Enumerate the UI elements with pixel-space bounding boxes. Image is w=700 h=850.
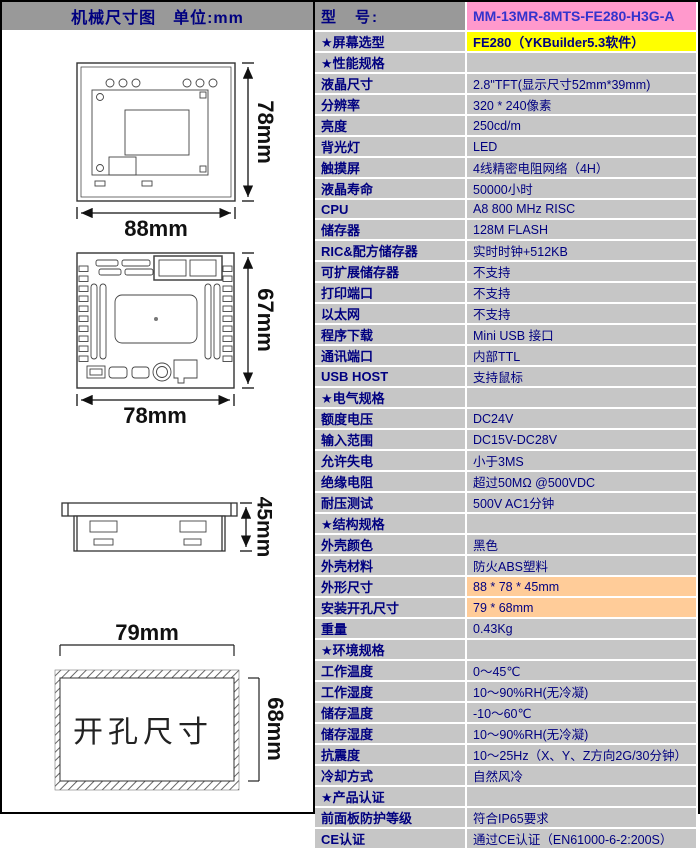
- spec-label: 重量: [315, 619, 467, 640]
- spec-row: 重量0.43Kg: [315, 619, 698, 640]
- spec-row: 程序下载Mini USB 接口: [315, 325, 698, 346]
- spec-table: 型 号:MM-13MR-8MTS-FE280-H3G-A★屏幕选型FE280（Y…: [315, 2, 698, 850]
- spec-label: CE认证: [315, 829, 467, 850]
- section-header-label: ★电气规格: [315, 388, 467, 409]
- spec-label: 程序下载: [315, 325, 467, 346]
- spec-row: ★屏幕选型FE280（YKBuilder5.3软件）: [315, 32, 698, 53]
- back-view-drawing: 67mm 78mm: [2, 238, 313, 428]
- spec-row: 液晶尺寸2.8"TFT(显示尺寸52mm*39mm): [315, 74, 698, 95]
- spec-value: [467, 640, 698, 661]
- spec-value: 小于3MS: [467, 451, 698, 472]
- spec-label: 外壳材料: [315, 556, 467, 577]
- mechanical-drawing-panel: 机械尺寸图 单位:mm: [2, 2, 315, 812]
- spec-value: 10～90%RH(无冷凝): [467, 682, 698, 703]
- spec-row: 工作温度0～45℃: [315, 661, 698, 682]
- spec-row: 抗震度10～25Hz（X、Y、Z方向2G/30分钟）: [315, 745, 698, 766]
- spec-value: Mini USB 接口: [467, 325, 698, 346]
- spec-value: 超过50MΩ @500VDC: [467, 472, 698, 493]
- back-height-dimension: [242, 253, 254, 388]
- drawing-area: 78mm 88mm: [2, 30, 313, 812]
- spec-label: 可扩展储存器: [315, 262, 467, 283]
- cutout-width-label: 79mm: [115, 620, 179, 645]
- spec-value: -10～60℃: [467, 703, 698, 724]
- spec-value: 0～45℃: [467, 661, 698, 682]
- spec-label: 以太网: [315, 304, 467, 325]
- spec-label: 外形尺寸: [315, 577, 467, 598]
- spec-label: 安装开孔尺寸: [315, 598, 467, 619]
- spec-label: 触摸屏: [315, 158, 467, 179]
- spec-value: [467, 53, 698, 74]
- spec-value: A8 800 MHz RISC: [467, 200, 698, 220]
- spec-value: 符合IP65要求: [467, 808, 698, 829]
- spec-row: 额度电压DC24V: [315, 409, 698, 430]
- spec-row: 亮度250cd/m: [315, 116, 698, 137]
- spec-row: 绝缘电阻超过50MΩ @500VDC: [315, 472, 698, 493]
- spec-row: 触摸屏4线精密电阻网络（4H）: [315, 158, 698, 179]
- spec-row: RIC&配方储存器实时时钟+512KB: [315, 241, 698, 262]
- spec-value: 不支持: [467, 262, 698, 283]
- spec-row: 冷却方式自然风冷: [315, 766, 698, 787]
- spec-value: DC15V-DC28V: [467, 430, 698, 451]
- spec-value: 2.8"TFT(显示尺寸52mm*39mm): [467, 74, 698, 95]
- side-view-drawing: 45mm: [2, 428, 313, 618]
- spec-label: 分辨率: [315, 95, 467, 116]
- spec-label: 外壳颜色: [315, 535, 467, 556]
- spec-section-row: ★产品认证: [315, 787, 698, 808]
- spec-row: 外形尺寸88 * 78 * 45mm: [315, 577, 698, 598]
- front-width-label: 88mm: [124, 216, 188, 238]
- spec-value: 不支持: [467, 304, 698, 325]
- spec-value: 10～90%RH(无冷凝): [467, 724, 698, 745]
- section-header-label: ★产品认证: [315, 787, 467, 808]
- spec-row: 打印端口不支持: [315, 283, 698, 304]
- spec-value: 内部TTL: [467, 346, 698, 367]
- spec-value: MM-13MR-8MTS-FE280-H3G-A: [467, 2, 698, 32]
- cutout-width-dimension: [60, 645, 234, 656]
- side-view-outline: [62, 503, 237, 551]
- spec-row: 可扩展储存器不支持: [315, 262, 698, 283]
- spec-label: 工作湿度: [315, 682, 467, 703]
- spec-label: 工作温度: [315, 661, 467, 682]
- spec-row: 外壳材料防火ABS塑料: [315, 556, 698, 577]
- spec-row: 储存器128M FLASH: [315, 220, 698, 241]
- spec-value: [467, 388, 698, 409]
- cutout-label: 开孔尺寸: [73, 716, 213, 749]
- cutout-height-label: 68mm: [263, 697, 288, 761]
- spec-label: 型 号:: [315, 2, 467, 32]
- spec-label: 额度电压: [315, 409, 467, 430]
- spec-label: 通讯端口: [315, 346, 467, 367]
- spec-table-rows: 型 号:MM-13MR-8MTS-FE280-H3G-A★屏幕选型FE280（Y…: [315, 2, 698, 850]
- spec-label: 液晶寿命: [315, 179, 467, 200]
- spec-label: 储存湿度: [315, 724, 467, 745]
- spec-value: 自然风冷: [467, 766, 698, 787]
- spec-label: 储存器: [315, 220, 467, 241]
- spec-label: 抗震度: [315, 745, 467, 766]
- front-bezel-outline: [77, 63, 235, 201]
- drawing-panel-title: 机械尺寸图 单位:mm: [71, 4, 244, 28]
- spec-label: 冷却方式: [315, 766, 467, 787]
- spec-value: 250cd/m: [467, 116, 698, 137]
- spec-value: 4线精密电阻网络（4H）: [467, 158, 698, 179]
- spec-value: 500V AC1分钟: [467, 493, 698, 514]
- spec-row: 储存温度-10～60℃: [315, 703, 698, 724]
- spec-label: ★屏幕选型: [315, 32, 467, 53]
- spec-label: 允许失电: [315, 451, 467, 472]
- front-height-dimension: [242, 63, 254, 201]
- spec-row: USB HOST支持鼠标: [315, 367, 698, 388]
- spec-value: FE280（YKBuilder5.3软件）: [467, 32, 698, 53]
- spec-label: 前面板防护等级: [315, 808, 467, 829]
- spec-label: 背光灯: [315, 137, 467, 158]
- spec-row: 安装开孔尺寸79 * 68mm: [315, 598, 698, 619]
- spec-value: LED: [467, 137, 698, 158]
- front-view-drawing: 78mm 88mm: [2, 30, 313, 238]
- model-row: 型 号:MM-13MR-8MTS-FE280-H3G-A: [315, 2, 698, 32]
- section-header-label: ★环境规格: [315, 640, 467, 661]
- spec-row: 通讯端口内部TTL: [315, 346, 698, 367]
- spec-row: 输入范围DC15V-DC28V: [315, 430, 698, 451]
- side-depth-dimension: [240, 503, 252, 551]
- spec-label: RIC&配方储存器: [315, 241, 467, 262]
- spec-row: CE认证通过CE认证（EN61000-6-2:200S）: [315, 829, 698, 850]
- spec-row: 分辨率320 * 240像素: [315, 95, 698, 116]
- spec-label: 储存温度: [315, 703, 467, 724]
- spec-value: [467, 787, 698, 808]
- spec-row: 背光灯LED: [315, 137, 698, 158]
- cutout-height-dimension: [248, 678, 259, 781]
- section-header-label: ★结构规格: [315, 514, 467, 535]
- drawing-panel-header: 机械尺寸图 单位:mm: [2, 2, 313, 30]
- spec-value: 支持鼠标: [467, 367, 698, 388]
- spec-row: 液晶寿命50000小时: [315, 179, 698, 200]
- spec-label: 绝缘电阻: [315, 472, 467, 493]
- spec-row: 工作湿度10～90%RH(无冷凝): [315, 682, 698, 703]
- spec-row: 允许失电小于3MS: [315, 451, 698, 472]
- spec-label: CPU: [315, 200, 467, 220]
- spec-value: 通过CE认证（EN61000-6-2:200S）: [467, 829, 698, 850]
- spec-label: 液晶尺寸: [315, 74, 467, 95]
- front-height-label: 78mm: [253, 100, 278, 164]
- cutout-drawing: 79mm 开孔尺寸 68mm: [2, 618, 313, 810]
- side-depth-label: 45mm: [252, 497, 275, 558]
- spec-row: CPUA8 800 MHz RISC: [315, 200, 698, 220]
- section-header-label: ★性能规格: [315, 53, 467, 74]
- spec-panel: 型 号:MM-13MR-8MTS-FE280-H3G-A★屏幕选型FE280（Y…: [315, 2, 698, 812]
- spec-value: [467, 514, 698, 535]
- spec-value: DC24V: [467, 409, 698, 430]
- spec-value: 防火ABS塑料: [467, 556, 698, 577]
- back-height-label: 67mm: [253, 288, 278, 352]
- spec-row: 耐压测试500V AC1分钟: [315, 493, 698, 514]
- spec-row: 储存湿度10～90%RH(无冷凝): [315, 724, 698, 745]
- spec-row: 以太网不支持: [315, 304, 698, 325]
- spec-label: 输入范围: [315, 430, 467, 451]
- spec-section-row: ★结构规格: [315, 514, 698, 535]
- spec-value: 10～25Hz（X、Y、Z方向2G/30分钟）: [467, 745, 698, 766]
- spec-value: 88 * 78 * 45mm: [467, 577, 698, 598]
- spec-value: 0.43Kg: [467, 619, 698, 640]
- spec-row: 外壳颜色黑色: [315, 535, 698, 556]
- spec-section-row: ★性能规格: [315, 53, 698, 74]
- spec-value: 128M FLASH: [467, 220, 698, 241]
- spec-label: 打印端口: [315, 283, 467, 304]
- spec-value: 320 * 240像素: [467, 95, 698, 116]
- spec-section-row: ★电气规格: [315, 388, 698, 409]
- spec-value: 50000小时: [467, 179, 698, 200]
- spec-value: 不支持: [467, 283, 698, 304]
- spec-value: 79 * 68mm: [467, 598, 698, 619]
- spec-label: USB HOST: [315, 367, 467, 388]
- spec-label: 亮度: [315, 116, 467, 137]
- spec-row: 前面板防护等级符合IP65要求: [315, 808, 698, 829]
- spec-value: 黑色: [467, 535, 698, 556]
- back-width-label: 78mm: [123, 403, 187, 428]
- spec-sheet-page: 机械尺寸图 单位:mm: [0, 0, 700, 814]
- spec-value: 实时时钟+512KB: [467, 241, 698, 262]
- spec-section-row: ★环境规格: [315, 640, 698, 661]
- spec-label: 耐压测试: [315, 493, 467, 514]
